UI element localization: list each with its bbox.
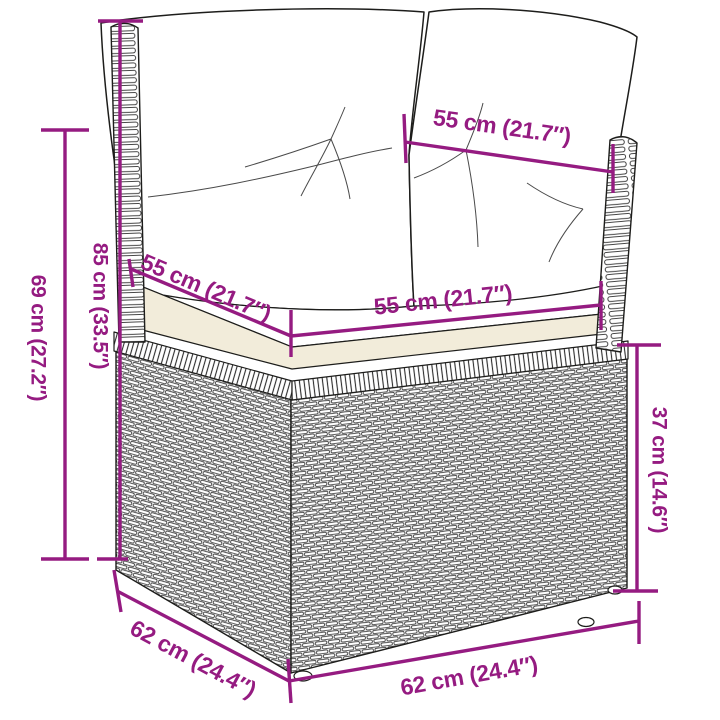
dimension-label-arm-height: 69 cm (27.2″) [28,275,49,401]
dimension-label-overall-height: 85 cm (33.5″) [90,243,111,369]
dimension-label-base-height: 37 cm (14.6″) [649,407,670,533]
dimension-diagram: 55 cm (21.7″) 55 cm (21.7″) 55 cm (21.7″… [0,0,720,720]
